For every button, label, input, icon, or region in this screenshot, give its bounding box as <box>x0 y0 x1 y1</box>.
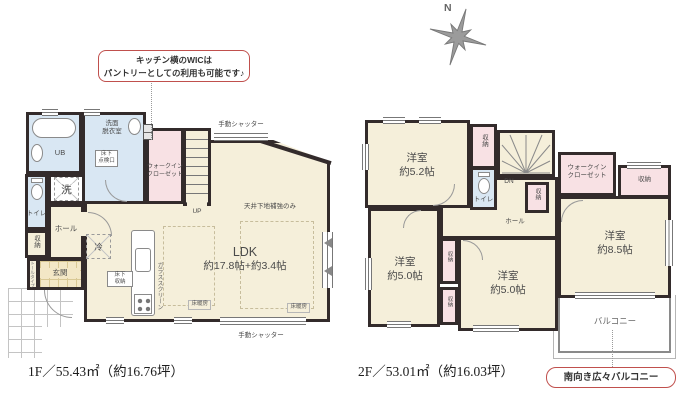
storage-right-window <box>627 162 661 169</box>
floor2-area-label: 2F／53.01㎡（約16.03坪） <box>358 360 514 380</box>
storage-2f-mid-2-label: 収納 <box>446 296 452 307</box>
storage-2f-right-label: 収納 <box>618 176 671 184</box>
shutter-bottom-label: 手動シャッター <box>216 332 306 340</box>
room52-left-window <box>362 144 369 170</box>
floor2-plan: ホール 洋室 約5.2帖 収納 トイレ DN 収納 ウォークイン <box>355 108 687 368</box>
floor1-area-label: 1F／55.43㎡（約16.76坪） <box>28 360 184 380</box>
room-50-left-name: 洋室 <box>365 256 445 270</box>
bath-window-2 <box>84 109 100 116</box>
compass-rose-icon: N <box>424 2 494 68</box>
floor1-plan: UB 洗面 脱衣室 床下 点検口 洗 トイレ 収納 ホール トールタイプ 玄関 <box>0 108 345 368</box>
room-85-size: 約8.5帖 <box>575 244 655 258</box>
toilet-bowl-1f <box>31 184 43 200</box>
bathtub <box>32 118 76 138</box>
balcony-note-connector <box>612 330 613 367</box>
room-50-left-size: 約5.0帖 <box>365 270 445 284</box>
kitchen-stove <box>134 294 152 314</box>
entrance-porch-tiles-lower <box>8 326 42 358</box>
room52-window-1 <box>383 117 405 124</box>
ldk-side-window-casement-2 <box>324 266 332 276</box>
floor-heating-label-2: 床暖房 <box>287 303 310 313</box>
room85-side-window <box>665 220 673 266</box>
toilet-bowl-2f <box>478 178 490 194</box>
balcony-label: バルコニー <box>573 316 657 327</box>
ceiling-note-label: 天井下地補強のみ <box>220 203 320 211</box>
storage-2f-top-label: 収納 <box>480 134 487 147</box>
balcony-note-callout: 南向き広々バルコニー <box>546 367 676 388</box>
room50-center-bottom-window <box>473 325 519 332</box>
wic-note-line2: パントリーとしての利用も可能です♪ <box>99 67 249 80</box>
room52-window-2 <box>419 117 441 124</box>
room-52-size: 約5.2帖 <box>377 166 457 180</box>
compass-star <box>419 0 498 76</box>
bath-stool <box>31 144 43 162</box>
toilet-tank-2f <box>478 172 490 177</box>
kitchen-window-2 <box>174 317 192 324</box>
room-50-center-size: 約5.0帖 <box>468 284 548 298</box>
toilet-tank-1f <box>31 178 43 183</box>
storage-2f-stair-label: 収納 <box>534 188 540 200</box>
balcony-access-window <box>575 292 655 299</box>
room-85-name: 洋室 <box>575 230 655 244</box>
storage-1f-label: 収納 <box>32 235 39 248</box>
refrigerator-box: 冷 <box>86 234 111 259</box>
room50-left-window <box>365 258 372 290</box>
toilet-label-1f: トイレ <box>23 210 50 218</box>
room-52-name: 洋室 <box>377 152 457 166</box>
wic-note-connector <box>151 83 152 140</box>
stairs-1f-opening <box>187 202 207 207</box>
wic-note-callout: キッチン横のWICは パントリーとしての利用も可能です♪ <box>98 50 250 82</box>
toilet-label-2f: トイレ <box>468 196 499 204</box>
hall-2f-label: ホール <box>495 218 535 226</box>
laundry-label: 洗 <box>61 182 72 197</box>
kitchen-sink <box>135 248 151 272</box>
floor-heating-label-1: 床暖房 <box>188 300 211 310</box>
ub-label: UB <box>46 148 74 158</box>
kitchen-window-1 <box>106 317 124 324</box>
stairs-1f <box>183 128 211 206</box>
room50-left-bottom-window <box>387 321 411 328</box>
washroom-sink <box>128 118 141 135</box>
hall-1f-label: ホール <box>48 224 84 234</box>
fridge-label: 冷 <box>94 241 103 253</box>
underfloor-inspection-label: 床下 点検口 <box>95 151 118 165</box>
ldk-side-window-casement-1 <box>324 238 332 248</box>
ldk-size-label: 約17.8帖+約3.4帖 <box>180 260 310 274</box>
wic-note-line1: キッチン横のWICは <box>99 54 249 67</box>
room-50-center-name: 洋室 <box>468 270 548 284</box>
storage-2f-mid-1-label: 収納 <box>446 251 452 262</box>
wic-2f-label: ウォークイン クローゼット <box>558 164 616 181</box>
shutter-top-label: 手動シャッター <box>205 121 277 129</box>
entrance-label: 玄関 <box>40 268 80 278</box>
floor-plan-canvas: N キッチン横のWICは パントリーとしての利用も可能です♪ UB 洗面 脱衣室 <box>0 0 687 408</box>
dn-label: DN <box>497 178 521 186</box>
up-label: UP <box>183 208 211 216</box>
shutter-top-window <box>214 133 268 141</box>
wic-1f-label: ウォークイン クローゼット <box>144 164 186 180</box>
ldk-name-label: LDK <box>180 244 310 260</box>
tall-type-label: トールタイプ <box>30 261 35 288</box>
bath-window-1 <box>42 109 58 116</box>
balcony-note-text: 南向き広々バルコニー <box>564 372 659 383</box>
stairs-2f-steps <box>500 133 552 174</box>
glass-screen-label: ガラススクリーン <box>156 262 162 310</box>
washing-machine-box: 洗 <box>54 177 79 201</box>
underfloor-storage-label: 床下 収納 <box>107 272 133 286</box>
ldk-south-window <box>220 317 306 325</box>
